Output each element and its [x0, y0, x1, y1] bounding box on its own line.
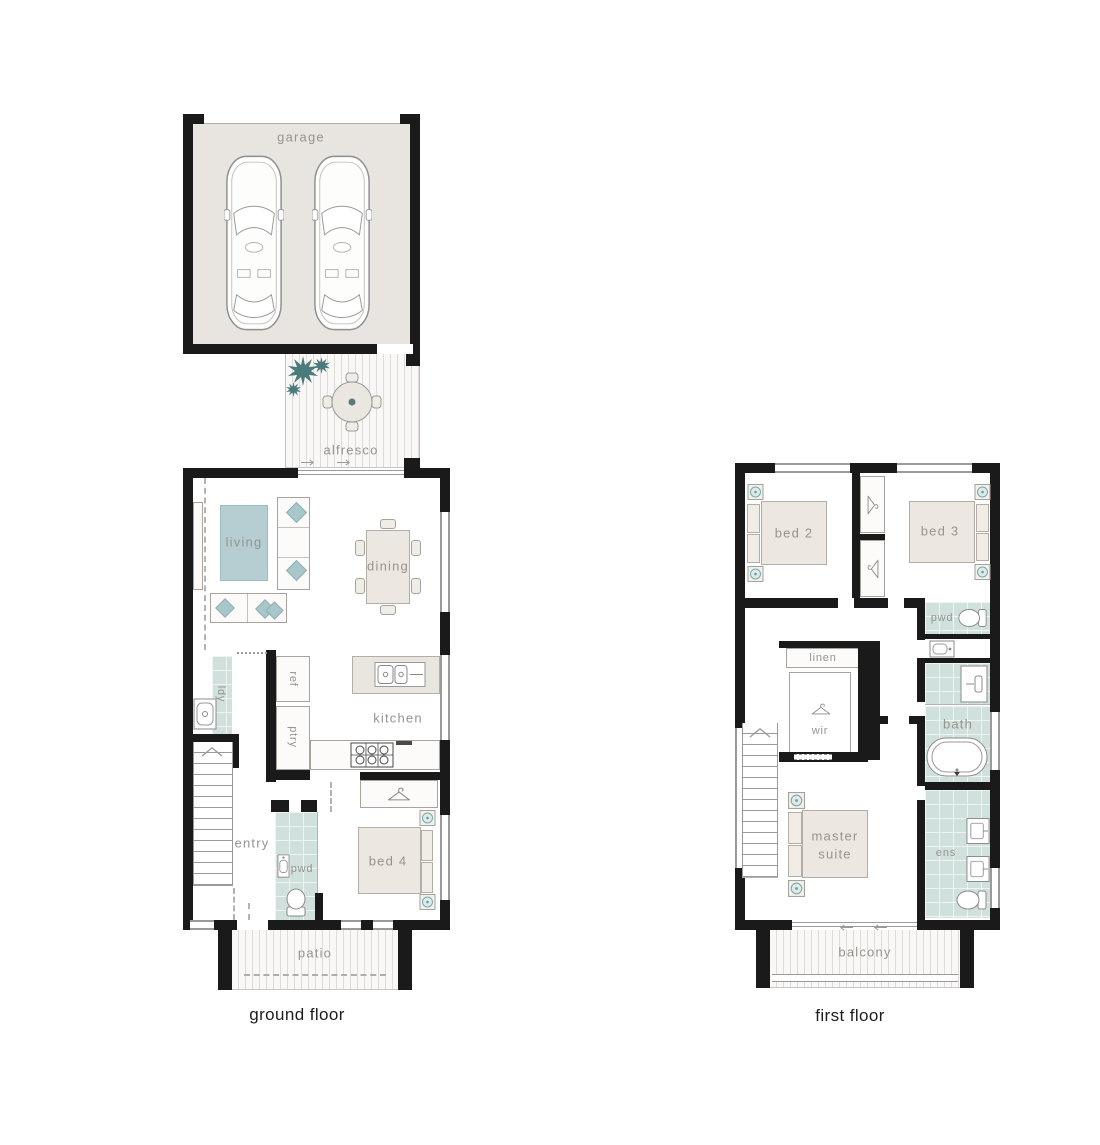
powder-label: pwd [931, 612, 954, 624]
sofa-seam [278, 557, 309, 558]
window [440, 815, 450, 900]
wall [404, 458, 420, 470]
alfresco-label: alfresco [323, 443, 378, 458]
hanger-icon [810, 702, 832, 716]
hanger-icon [866, 558, 880, 580]
balcony-sliding-door [792, 920, 922, 930]
slide-arrow-icon [838, 924, 854, 931]
toilet-icon [954, 888, 988, 912]
window [341, 920, 361, 930]
door-opening [838, 598, 854, 608]
patio-post [218, 930, 232, 990]
vanity-basin-icon [277, 853, 290, 879]
dining-label: dining [367, 559, 409, 574]
bedhead [421, 862, 433, 893]
garage-label: garage [277, 130, 325, 145]
nightstand-lamp-icon [788, 880, 805, 897]
dining-chair [355, 578, 365, 594]
wall [925, 782, 990, 790]
wall [880, 716, 888, 724]
bedhead [747, 504, 760, 533]
dashed-line [233, 888, 235, 920]
balcony-post [960, 930, 974, 988]
dashed-line [248, 903, 250, 920]
front-door-opening [237, 920, 268, 930]
stairs-direction-icon [748, 727, 772, 738]
dining-chair [380, 519, 396, 529]
kitchen-label: kitchen [373, 711, 423, 726]
window [373, 920, 393, 930]
oven-knobs [396, 741, 412, 745]
toilet-icon [956, 606, 988, 630]
dining-chair [411, 578, 421, 594]
window [897, 463, 972, 473]
bedhead [976, 504, 989, 532]
wall [266, 770, 310, 780]
bed2-label: bed 2 [775, 526, 814, 541]
window [990, 868, 1000, 908]
cavity-slider [330, 782, 332, 812]
balcony-rail [772, 974, 958, 982]
fridge-label: ref [287, 671, 299, 686]
wall [193, 734, 235, 742]
outdoor-table-icon [322, 372, 382, 432]
linen-label: linen [809, 652, 836, 664]
bedhead [747, 534, 760, 563]
nightstand-lamp-icon [747, 566, 764, 582]
patio-label: patio [298, 946, 332, 961]
slide-arrow-icon [872, 924, 888, 931]
garage-door [204, 114, 400, 124]
wall-thin [317, 812, 318, 893]
window [190, 920, 214, 930]
wall [266, 650, 276, 782]
wall [925, 634, 990, 639]
door-opening [917, 640, 925, 658]
garage-room [183, 114, 420, 354]
nightstand-lamp-icon [419, 894, 436, 910]
wall [301, 800, 317, 812]
wall [858, 641, 880, 760]
nightstand-lamp-icon [419, 810, 436, 826]
window [775, 463, 850, 473]
wall-thin [925, 704, 990, 705]
bedhead [421, 830, 433, 861]
ground-floor-title: ground floor [249, 1005, 345, 1025]
vanity-basin-icon [966, 855, 990, 883]
dining-chair [355, 540, 365, 556]
plant-icon [286, 382, 301, 397]
garage-rear-opening [377, 344, 413, 354]
sofa-seam [278, 527, 309, 528]
vanity-basin-icon [929, 640, 955, 658]
nightstand-lamp-icon [974, 564, 991, 580]
dashed-line [244, 974, 386, 976]
car-icon [224, 152, 284, 334]
tv-unit [193, 502, 203, 590]
dotted-line [237, 652, 267, 654]
vanity-basin-icon [966, 817, 990, 845]
wall [271, 800, 289, 812]
laundry-label: ldy [215, 686, 227, 702]
patio-post [398, 930, 412, 990]
door-opening [917, 702, 925, 716]
nightstand-lamp-icon [974, 484, 991, 500]
bed3-label: bed 3 [921, 524, 960, 539]
car-icon [312, 152, 372, 334]
wall [909, 716, 917, 724]
nightstand-lamp-icon [788, 792, 805, 809]
door-opening [917, 786, 925, 800]
shower-icon [960, 665, 988, 703]
window [440, 512, 450, 612]
floorplan-canvas: { "palette": { "wall": "#1a1a1a", "room_… [0, 0, 1100, 1145]
pantry-label: ptry [287, 726, 299, 748]
first-floor-title: first floor [815, 1006, 885, 1026]
stairs-direction-icon [200, 746, 224, 757]
toilet-icon [284, 888, 308, 918]
bed4-label: bed 4 [369, 854, 408, 869]
window [440, 655, 450, 740]
staircase [742, 723, 778, 877]
bathtub-icon [926, 737, 988, 777]
wall [406, 354, 420, 366]
wall [233, 734, 239, 768]
hanger-icon [866, 494, 880, 516]
living-label: living [226, 535, 263, 550]
wall-thin [742, 877, 778, 878]
alfresco-sliding-door [298, 468, 404, 478]
hanger-icon [386, 786, 412, 802]
wall [360, 772, 440, 780]
staircase [193, 742, 233, 886]
bedhead [976, 533, 989, 561]
sofa-seam [247, 594, 248, 622]
robe-opening [794, 754, 832, 760]
entry-label: entry [235, 836, 270, 851]
dining-chair [411, 540, 421, 556]
dining-chair [380, 605, 396, 615]
ensuite-label: ens [936, 847, 956, 859]
master-label: master suite [799, 827, 871, 862]
balcony-post [756, 930, 770, 988]
wall [315, 893, 323, 920]
dashed-line [204, 478, 206, 650]
slide-arrow-icon [336, 459, 352, 466]
wir-label: wir [812, 725, 828, 737]
window [990, 712, 1000, 770]
cooktop-icon [350, 742, 394, 768]
powder-label: pwd [291, 863, 314, 875]
balcony-label: balcony [838, 945, 891, 960]
door-opening [888, 598, 904, 608]
slide-arrow-icon [300, 459, 316, 466]
wall [779, 641, 868, 648]
laundry-sink-icon [193, 698, 217, 730]
bath-label: bath [943, 717, 973, 732]
nightstand-lamp-icon [747, 484, 764, 500]
kitchen-sink-icon [374, 661, 426, 688]
